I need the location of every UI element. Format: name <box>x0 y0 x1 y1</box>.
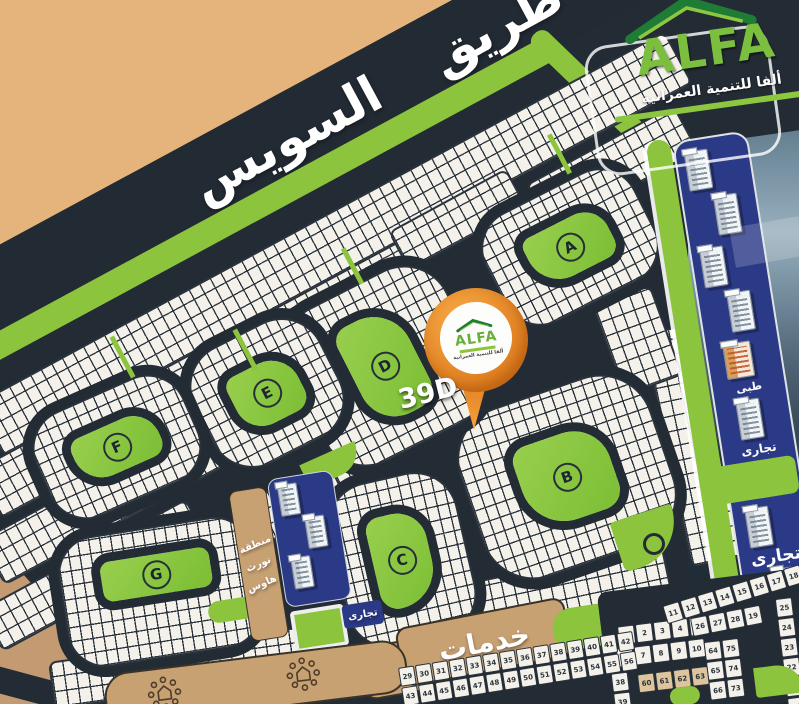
plot-number: 8 <box>651 642 670 663</box>
building-icon <box>277 482 302 517</box>
plot-number: 36 <box>516 647 535 668</box>
pin-plot-label: 39D <box>395 371 461 416</box>
green-corner-arc <box>669 685 701 704</box>
plot-number: 27 <box>708 612 728 634</box>
plot-number: 64 <box>704 640 723 661</box>
location-pin: ALFA ألفا للتنمية العمرانية 39D <box>398 286 538 436</box>
plot-number: 60 <box>637 672 656 693</box>
plot-number: 63 <box>691 666 710 687</box>
alfa-logo: ALFA ألفا للتنمية العمرانية <box>600 0 799 163</box>
commercial-chip: تجارى <box>341 599 384 629</box>
plot-number: 55 <box>603 653 622 674</box>
block-letter-a: A <box>550 227 589 266</box>
plot-number: 61 <box>655 670 674 691</box>
plot-number: 50 <box>519 667 538 688</box>
plot-number: 45 <box>435 680 454 701</box>
north-house-assembly: منطقة نورث هاوس تجارى <box>228 470 393 660</box>
block-letter-b: B <box>549 459 586 496</box>
plot-number: 35 <box>499 650 518 671</box>
plot-number: 40 <box>583 636 602 657</box>
mosque-ornament-icon <box>145 673 185 704</box>
plot-number: 54 <box>586 656 605 677</box>
plot-number: 38 <box>611 672 630 693</box>
plot-number: 49 <box>502 669 521 690</box>
block-letter-c: C <box>385 543 420 578</box>
plot-number: 32 <box>448 658 467 679</box>
plot-number: 39 <box>613 691 632 704</box>
plot-number: 20 <box>787 696 799 704</box>
plot-number: 53 <box>569 659 588 680</box>
plot-number: 47 <box>468 675 487 696</box>
plot-number: 24 <box>777 617 796 638</box>
north-house-label: هاوس <box>245 573 278 595</box>
plot-number: 39 <box>566 639 585 660</box>
plot-number: 41 <box>599 634 618 655</box>
plot-number: 52 <box>552 661 571 682</box>
plot-number: 31 <box>432 660 451 681</box>
plot-number: 29 <box>398 665 417 686</box>
plot-number: 25 <box>775 597 794 618</box>
building-icon <box>290 555 315 590</box>
plot-number: 30 <box>415 663 434 684</box>
block-letter-e: E <box>247 373 286 412</box>
masterplan-map: طريق السويس A B C D <box>0 0 799 704</box>
plot-number: 38 <box>549 642 568 663</box>
plot-number: 51 <box>535 664 554 685</box>
plot-number: 44 <box>418 683 437 704</box>
north-house-label: منطقة <box>238 533 273 556</box>
mosque-ornament-icon <box>283 654 323 694</box>
plot-number: 28 <box>725 608 745 630</box>
building-icon <box>304 514 329 549</box>
plot-number: 26 <box>690 615 710 637</box>
building-icon <box>699 245 729 288</box>
building-icon <box>735 397 765 440</box>
north-house-label: نورث <box>245 554 273 574</box>
commercial-label: تجارى <box>347 607 378 623</box>
plot-number: 33 <box>465 655 484 676</box>
plot-number: 42 <box>616 631 635 652</box>
block-letter-f: F <box>98 428 136 466</box>
plot-number: 23 <box>780 637 799 658</box>
plot-number: 19 <box>743 605 763 627</box>
plot-number: 43 <box>401 685 420 704</box>
plot-number: 48 <box>485 672 504 693</box>
plot-number: 56 <box>619 651 638 672</box>
building-icon <box>726 290 756 333</box>
plot-number: 34 <box>482 652 501 673</box>
plot-number: 75 <box>721 638 740 659</box>
medical-label: طبى <box>712 375 785 399</box>
plot-number: 46 <box>452 677 471 698</box>
plot-number: 73 <box>726 678 745 699</box>
medical-building-icon <box>722 340 755 380</box>
plot-number: 9 <box>669 640 688 661</box>
roundabout <box>646 536 662 552</box>
block-letter-g: G <box>140 558 173 591</box>
plot-number: 37 <box>532 644 551 665</box>
plot-number: 74 <box>724 658 743 679</box>
building-icon <box>744 505 774 548</box>
